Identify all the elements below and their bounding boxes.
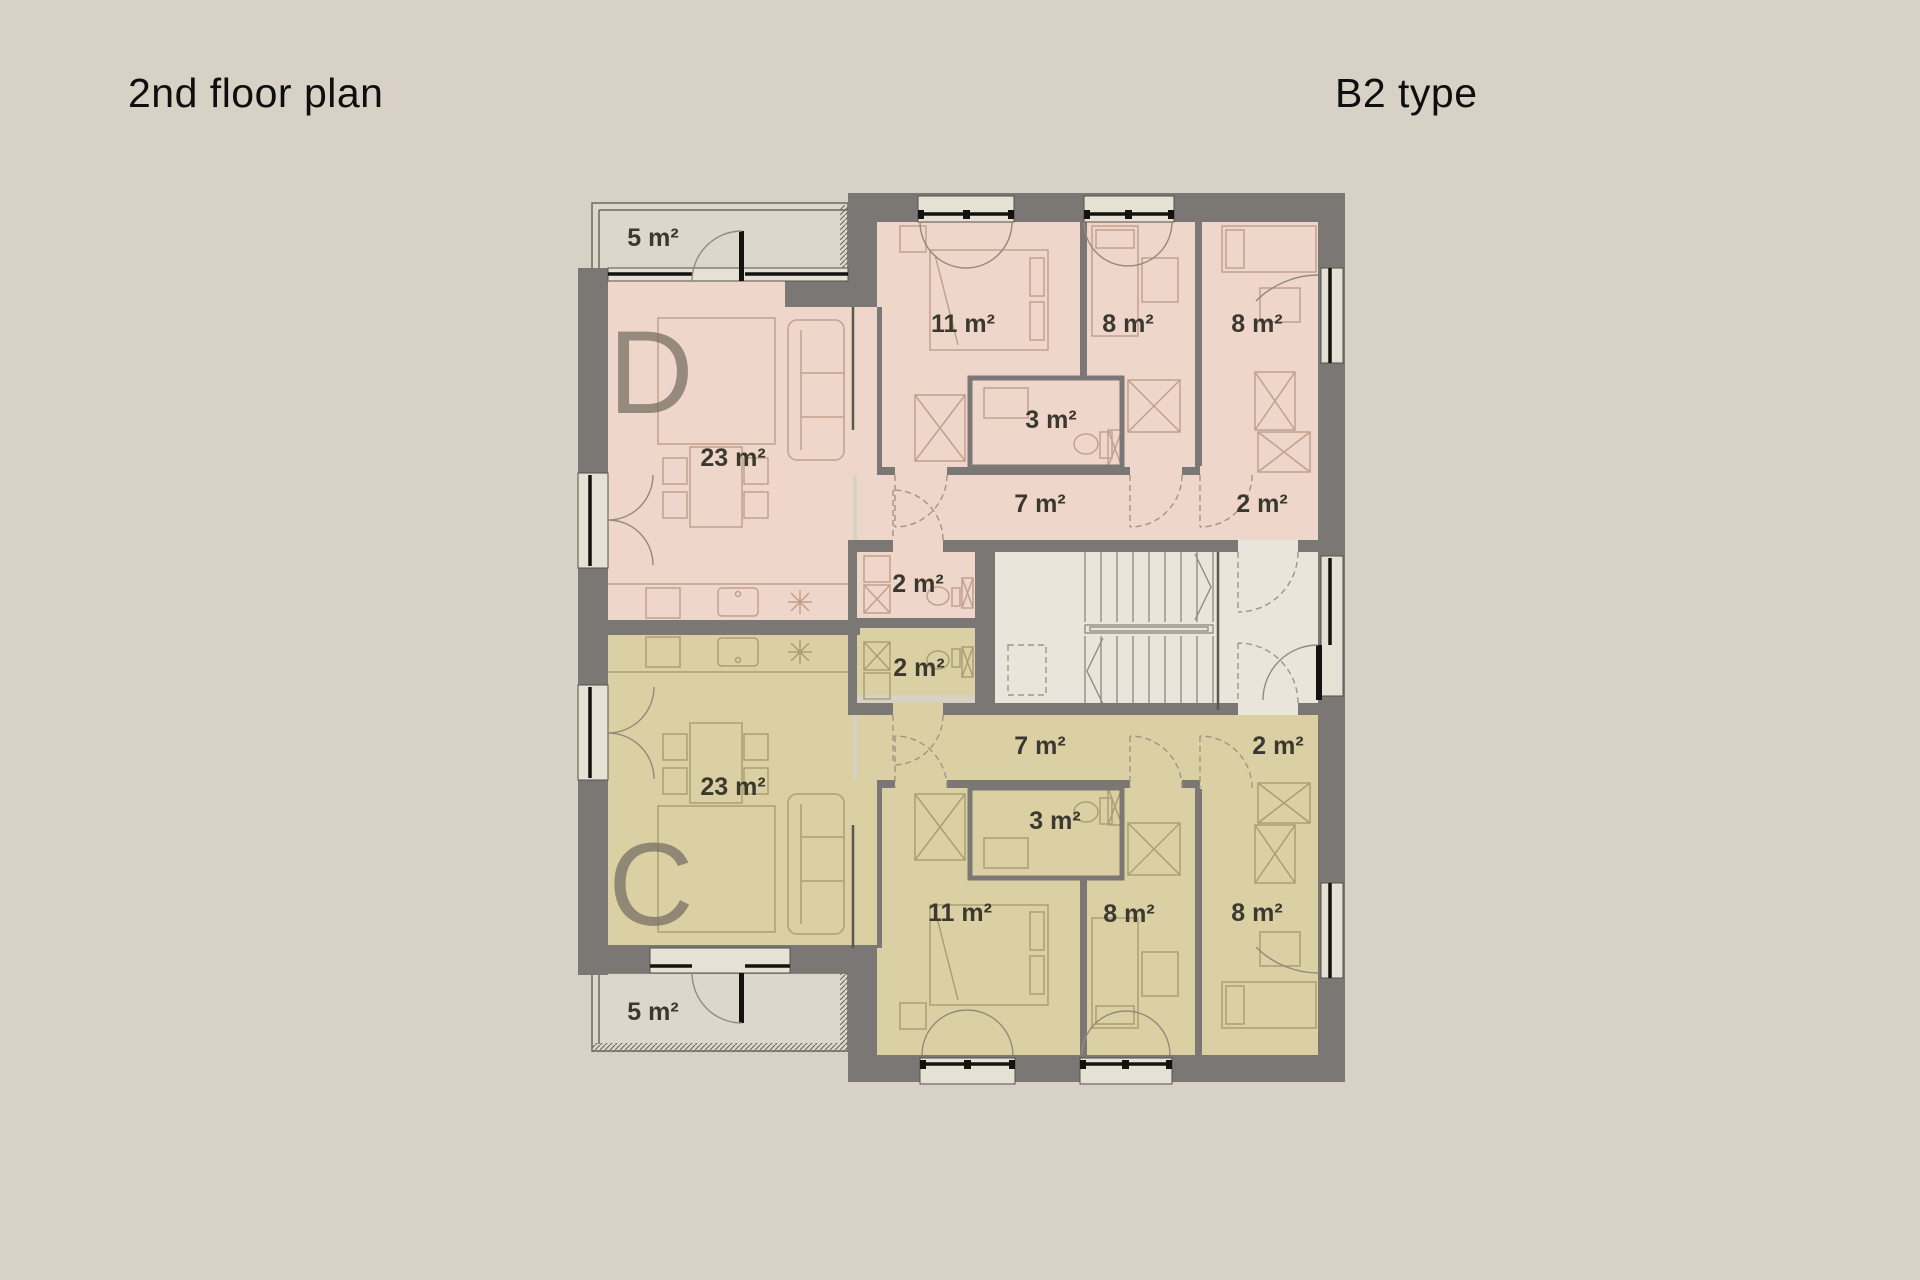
room-d-passage-fill	[853, 307, 877, 475]
label-d-bedroom1: 11 m²	[931, 310, 995, 338]
window	[1321, 883, 1343, 978]
cooktop-icon	[788, 590, 812, 614]
label-c-bedroom2: 8 m²	[1103, 900, 1154, 928]
label-c-hallway: 7 m²	[1014, 732, 1065, 760]
unit-c-letter: C	[608, 819, 693, 951]
balcony-c-hatch	[592, 1043, 848, 1052]
room-c-hallway-fill	[857, 715, 1318, 780]
label-d-bedroom3: 8 m²	[1231, 310, 1282, 338]
balcony-door-c-glazing	[650, 948, 790, 973]
room-c-passage-fill	[853, 780, 877, 948]
balcony-door-d-leaf	[739, 231, 744, 281]
label-c-bedroom3: 8 m²	[1231, 899, 1282, 927]
window	[578, 473, 608, 568]
label-c-living: 23 m²	[700, 773, 765, 801]
label-c-entry: 2 m²	[1252, 732, 1303, 760]
label-d-bathroom: 3 m²	[1025, 406, 1076, 434]
cooktop-icon	[788, 640, 812, 664]
label-c-bedroom1: 11 m²	[928, 899, 992, 927]
label-d-living: 23 m²	[700, 444, 765, 472]
floor-plan-canvas: D C 5 m² 23 m² 11 m² 8 m² 8 m² 3 m² 7 m²…	[0, 0, 1920, 1280]
entrance-door-leaf	[1316, 645, 1322, 700]
floor-plan-page: { "header": { "plan_title": "2nd floor p…	[0, 0, 1920, 1280]
window	[1321, 556, 1343, 696]
unit-d-letter: D	[608, 307, 693, 439]
label-d-entry: 2 m²	[1236, 490, 1287, 518]
label-d-hallway: 7 m²	[1014, 490, 1065, 518]
room-d-bedblock-fill	[877, 222, 1318, 475]
label-d-wc: 2 m²	[892, 570, 943, 598]
label-c-wc: 2 m²	[893, 654, 944, 682]
label-c-bathroom: 3 m²	[1029, 807, 1080, 835]
label-d-balcony: 5 m²	[627, 224, 678, 252]
label-c-balcony: 5 m²	[627, 998, 678, 1026]
window	[578, 685, 608, 780]
window	[1321, 268, 1343, 363]
balcony-d-hatch	[840, 205, 849, 276]
label-d-bedroom2: 8 m²	[1102, 310, 1153, 338]
wall-step-bottom	[848, 945, 877, 1055]
wall-unit-divider	[578, 620, 860, 635]
balcony-door-c-leaf	[739, 973, 744, 1023]
